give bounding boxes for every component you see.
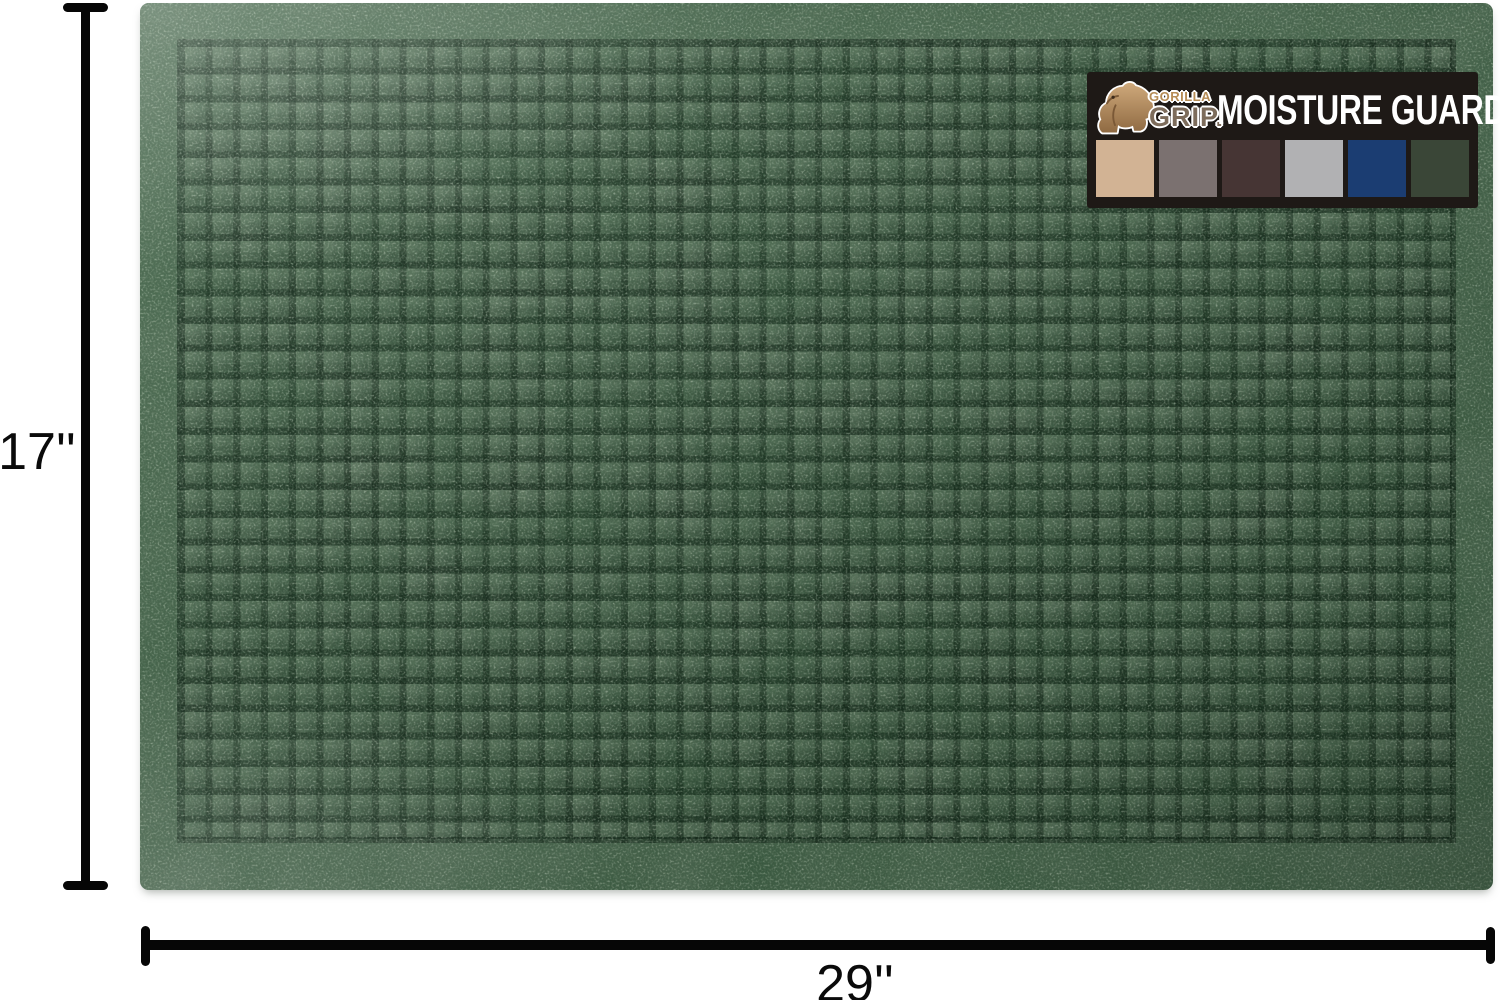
color-swatch-row bbox=[1096, 140, 1469, 197]
color-swatch-navy-blue bbox=[1348, 140, 1406, 197]
width-dimension-right-cap bbox=[1486, 927, 1495, 964]
gorilla-grip-logo: GORILLA GRIP. bbox=[1097, 78, 1215, 142]
height-dimension-bottom-cap bbox=[63, 881, 108, 890]
badge-title: MOISTURE GUARD bbox=[1217, 89, 1500, 131]
color-swatch-beige bbox=[1096, 140, 1154, 197]
color-swatch-light-gray bbox=[1285, 140, 1343, 197]
color-swatch-dark-brown bbox=[1222, 140, 1280, 197]
width-dimension-line bbox=[146, 940, 1491, 950]
height-dimension-label: 17'' bbox=[0, 426, 80, 478]
height-dimension-line bbox=[81, 7, 90, 883]
color-swatch-taupe-gray bbox=[1159, 140, 1217, 197]
brand-name-bottom: GRIP. bbox=[1149, 104, 1224, 131]
brand-name: GORILLA GRIP. bbox=[1149, 90, 1224, 131]
width-dimension-left-cap bbox=[141, 926, 150, 966]
height-dimension-top-cap bbox=[63, 3, 108, 12]
color-swatch-dark-green bbox=[1411, 140, 1469, 197]
brand-badge: GORILLA GRIP. MOISTURE GUARD bbox=[1087, 72, 1478, 208]
product-image: GORILLA GRIP. MOISTURE GUARD 17'' 29'' bbox=[0, 0, 1500, 1000]
width-dimension-label: 29'' bbox=[775, 958, 935, 1000]
